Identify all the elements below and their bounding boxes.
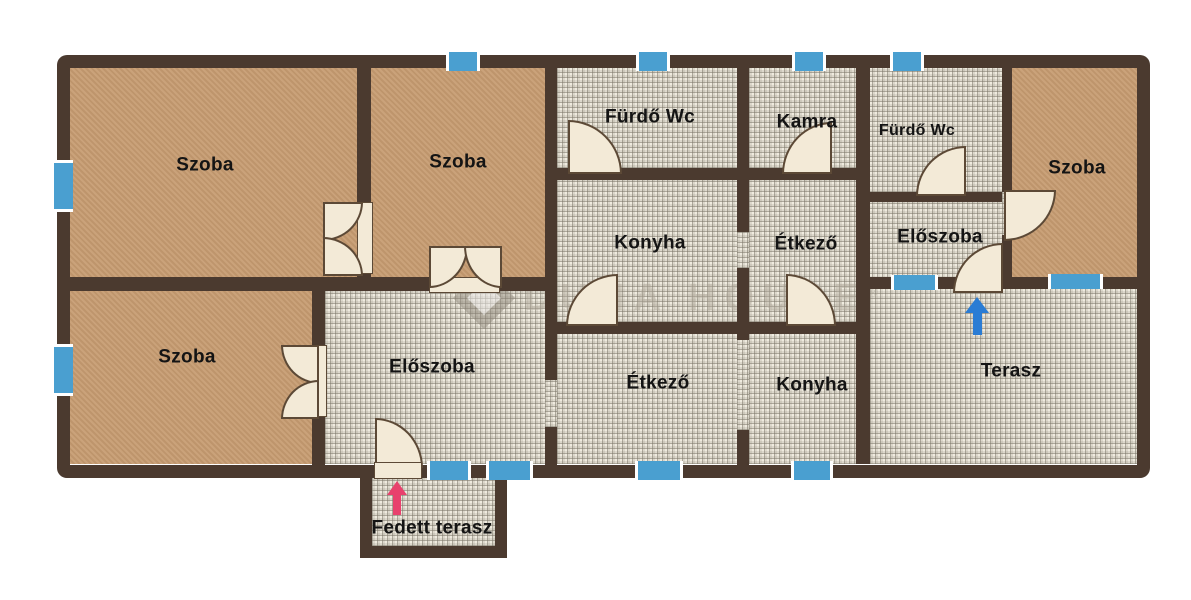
wall-etkezo-eloszoba-terasz [856, 172, 870, 464]
room-label-etkezo-top: Étkező [774, 235, 837, 254]
window-furdo-top [636, 52, 670, 71]
opening-konyha-etkezo [737, 232, 749, 268]
window-szoba1-left [54, 160, 73, 212]
opening-etkezo-konyha-low [737, 340, 749, 430]
fedett-terasz-entrance-arrow-icon [387, 481, 407, 515]
room-label-szoba-bottom-left: Szoba [158, 348, 215, 367]
wall-fedett-left [360, 470, 372, 558]
window-kamra-top [792, 52, 826, 71]
window-eloszoba-bottom-1 [427, 461, 471, 480]
window-konyha-bottom [791, 461, 833, 480]
room-label-etkezo-bottom: Étkező [626, 374, 689, 393]
wall-eloszoba-etkezo-low [545, 427, 557, 465]
wall-etkezo-konyha-low [737, 430, 749, 465]
room-label-szoba-right: Szoba [1048, 159, 1105, 178]
arrow-head [965, 297, 989, 313]
arrow-head [387, 481, 407, 495]
room-label-konyha-bottom: Konyha [776, 376, 847, 395]
room-label-furdo-wc-main: Fürdő Wc [605, 108, 695, 127]
room-label-fedett-terasz: Fedett terasz [371, 519, 492, 538]
wall-fedett-bottom [360, 546, 507, 558]
wall-szoba2-middle [545, 68, 557, 380]
room-label-szoba-top-mid: Szoba [429, 153, 486, 172]
room-label-konyha-top: Konyha [614, 234, 685, 253]
window-szoba4-left [54, 344, 73, 396]
window-furdo2-top [890, 52, 924, 71]
arrow-stem [393, 495, 401, 515]
terasz-entrance-arrow-icon [965, 297, 989, 335]
wall-furdo2-szoba-right [1002, 68, 1012, 192]
floor-plan: DUNA HOUSE® [0, 0, 1191, 600]
window-etkezo-bottom [635, 461, 683, 480]
wall-fedett-right [495, 470, 507, 558]
opening-eloszoba-etkezo [545, 380, 557, 427]
window-eloszoba-terasz [891, 275, 938, 290]
room-label-terasz: Terasz [981, 362, 1042, 381]
room-label-szoba-top-left: Szoba [176, 156, 233, 175]
wall-furdo-kamra-konyha [737, 68, 749, 232]
room-label-kamra: Kamra [777, 113, 838, 132]
window-eloszoba-bottom-2 [486, 461, 533, 480]
wall-kamra-furdo2 [856, 68, 870, 179]
room-label-eloszoba-center: Előszoba [389, 358, 475, 377]
window-szoba-right-terasz [1048, 274, 1103, 289]
room-label-eloszoba-right: Előszoba [897, 228, 983, 247]
arrow-stem [973, 313, 982, 335]
window-szoba2-top [446, 52, 480, 71]
room-label-furdo-wc-small: Fürdő Wc [879, 123, 955, 139]
door-fedett-terasz-threshold [374, 462, 422, 479]
